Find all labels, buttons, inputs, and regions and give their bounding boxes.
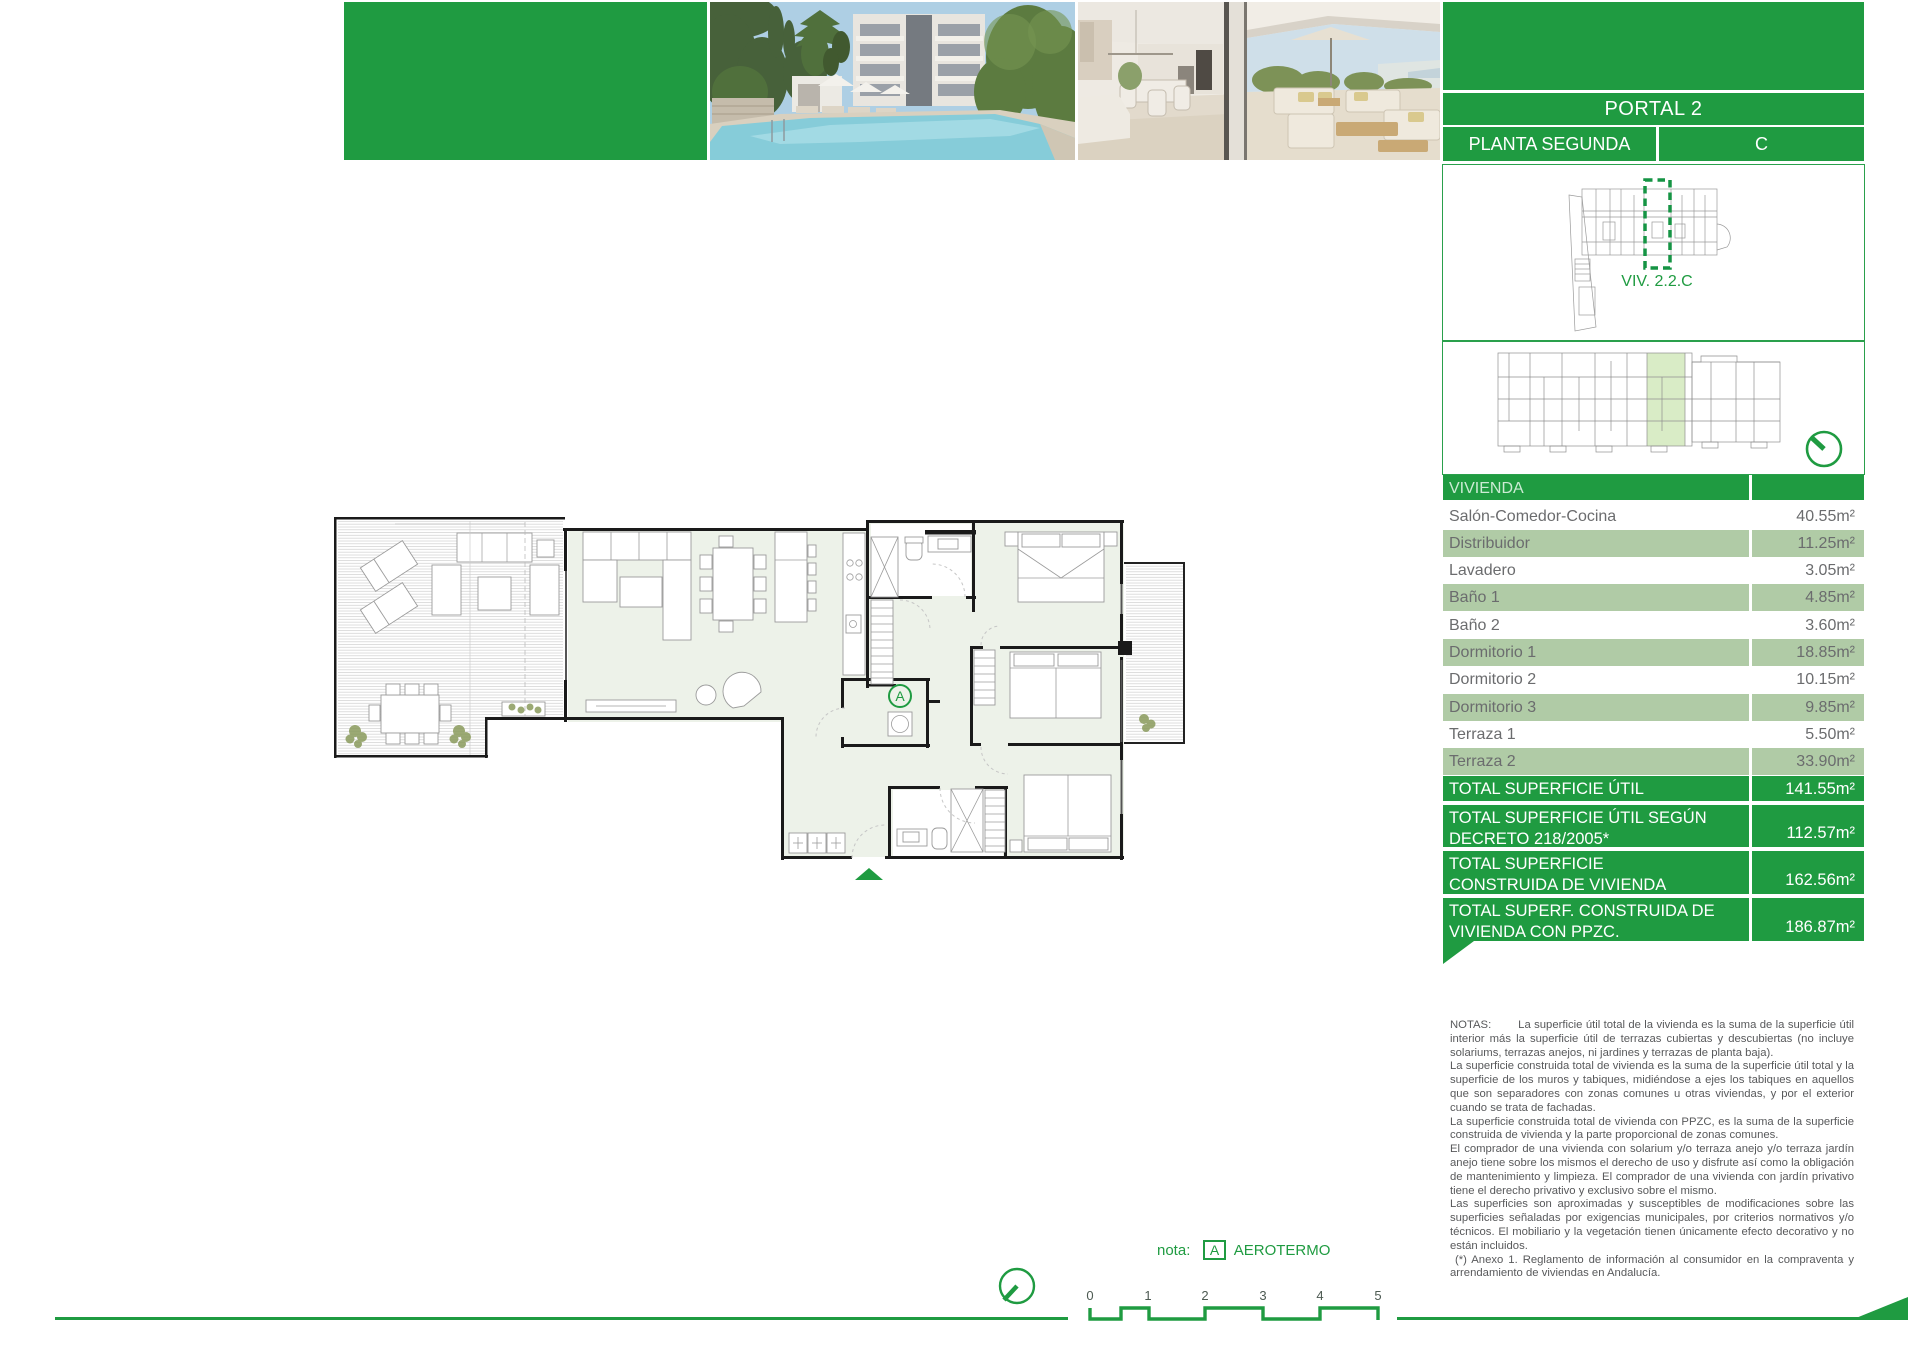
svg-text:3: 3 (1259, 1288, 1266, 1303)
svg-text:A: A (895, 688, 905, 704)
svg-text:4: 4 (1316, 1288, 1323, 1303)
svg-text:1: 1 (1144, 1288, 1151, 1303)
svg-text:2: 2 (1201, 1288, 1208, 1303)
svg-text:0: 0 (1086, 1288, 1093, 1303)
svg-text:VIV. 2.2.C: VIV. 2.2.C (1621, 273, 1692, 290)
svg-text:5: 5 (1374, 1288, 1381, 1303)
